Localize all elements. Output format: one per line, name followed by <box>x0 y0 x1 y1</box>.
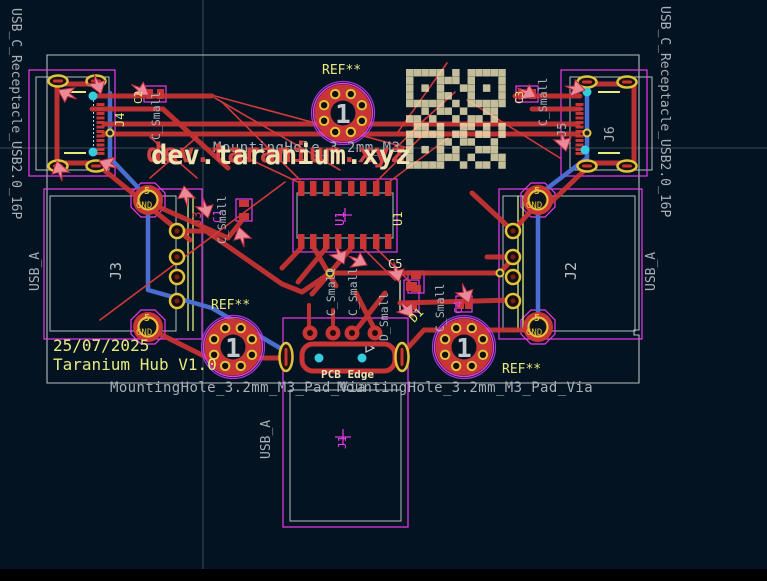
ref-des-j6-fab[interactable]: J6 <box>604 126 618 142</box>
hole-number-bottom-left: 1 <box>213 334 253 364</box>
pcb-editor-canvas: USB_C_Receptacle_USB2.0_16P USB_C_Recept… <box>0 0 767 581</box>
footprint-name-mounting-hole-right[interactable]: MountingHole_3.2mm_M3_Pad_Via <box>337 381 593 396</box>
footprint-name-usb-c-left[interactable]: USB_C_Receptacle_USB2.0_16P <box>8 8 22 219</box>
ref-des-u1-silk[interactable]: U1 <box>392 212 405 226</box>
ref-des-j1[interactable]: J1 <box>337 436 349 449</box>
pad-number-gnd-l-bot: 5 <box>144 313 150 324</box>
hole-number-bottom-right: 1 <box>444 334 484 364</box>
footprint-name-usb-c-right[interactable]: USB_C_Receptacle_USB2.0_16P <box>657 6 671 217</box>
ref-label-bottom-left-hole[interactable]: REF** <box>211 299 250 313</box>
board-version[interactable]: Taranium Hub V1.0 <box>53 356 217 374</box>
usb-a-label-left[interactable]: USB_A <box>29 252 43 291</box>
value-c4-c-small[interactable]: C_Small <box>434 284 447 332</box>
ref-des-j3-fab[interactable]: J3 <box>108 262 125 280</box>
ref-des-j4[interactable]: J4 <box>114 113 127 127</box>
ref-des-j5[interactable]: J5 <box>556 123 569 137</box>
silkscreen-title[interactable]: dev.taranium.xyz <box>151 141 411 171</box>
pad-net-gnd-r-top: GND <box>526 202 542 212</box>
usb-a-label-bottom[interactable]: USB_A <box>260 420 274 459</box>
pad-net-gnd-l-top: GND <box>136 202 152 212</box>
pad-number-gnd-l-top: 5 <box>144 186 150 197</box>
pad-net-gnd-r-bot: GND <box>526 329 542 339</box>
ref-des-c4[interactable]: C4 <box>453 301 465 314</box>
pcb-edge-label[interactable]: PCB Edge <box>321 369 374 381</box>
ref-label-bottom-right-hole[interactable]: REF** <box>502 363 541 377</box>
ref-des-j3-silk[interactable]: J3 <box>191 212 204 226</box>
ref-des-u1[interactable]: U1 <box>334 212 347 226</box>
hole-number-top: 1 <box>323 100 363 130</box>
ref-des-c5[interactable]: C5 <box>388 258 402 271</box>
value-c3-c-small[interactable]: C_Small <box>537 78 550 126</box>
pad-net-gnd-l-bot: GND <box>136 329 152 339</box>
value-c-small-b[interactable]: C_Small <box>347 268 360 316</box>
value-d1-d-small[interactable]: D_Small <box>378 293 391 341</box>
canvas-edge <box>0 569 767 581</box>
value-c1-c-small[interactable]: C_Small <box>216 196 229 244</box>
ref-des-c3[interactable]: C3 <box>514 91 526 104</box>
ref-label-top-hole[interactable]: REF** <box>322 64 361 78</box>
value-c-small-a[interactable]: C_Small <box>325 268 338 316</box>
pad-number-gnd-r-top: 5 <box>534 186 540 197</box>
pad-number-gnd-r-bot: 5 <box>534 313 540 324</box>
value-c2-c-small[interactable]: C_Small <box>150 92 163 140</box>
board-date[interactable]: 25/07/2025 <box>53 337 149 355</box>
ref-des-j2-fab[interactable]: J2 <box>563 262 580 280</box>
ref-des-c2[interactable]: C2 <box>133 91 145 104</box>
qr-code[interactable] <box>406 69 506 169</box>
usb-a-label-right[interactable]: USB_A <box>645 252 659 291</box>
footprint-name-mounting-hole-left[interactable]: MountingHole_3.2mm_M3_Pad_Via <box>110 381 366 396</box>
